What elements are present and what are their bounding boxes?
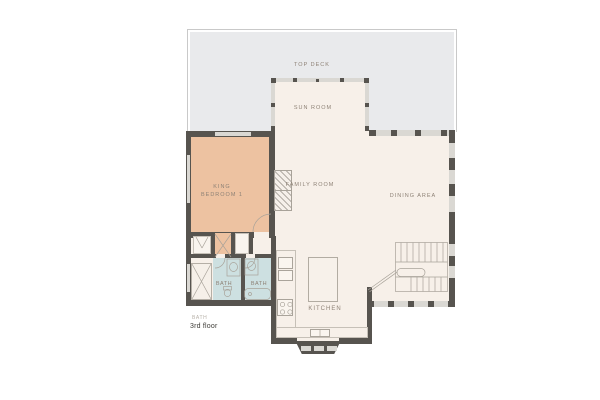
fireplace-lower	[274, 190, 292, 211]
sun-room-post	[364, 78, 369, 83]
label-king-line1: KING	[187, 183, 257, 191]
label-king-line2: BEDROOM 1	[187, 191, 257, 199]
sun-room-post	[271, 78, 276, 83]
bath-south-wall	[186, 300, 276, 306]
label-sun-room: SUN ROOM	[273, 104, 353, 112]
label-bath-1: BATH	[209, 280, 239, 288]
bedroom-north-window	[215, 132, 251, 136]
label-floor-name: 3rd floor	[190, 323, 217, 330]
bay-window-glass	[301, 346, 337, 351]
wall-post	[448, 301, 455, 307]
label-top-deck: TOP DECK	[272, 61, 352, 69]
bay-window-post	[311, 346, 314, 351]
sun-room-north-wall	[271, 78, 369, 82]
west-lower-window	[187, 264, 190, 292]
label-family-room: FAMILY ROOM	[270, 181, 350, 189]
wall-post	[449, 256, 455, 266]
wall-post	[415, 130, 421, 136]
fridge	[278, 257, 293, 269]
label-outside-bath: BATH	[192, 315, 207, 321]
kitchen-south-wall-left	[271, 338, 297, 344]
wall-post	[388, 301, 394, 307]
cabinet	[278, 270, 293, 281]
label-kitchen: KITCHEN	[285, 305, 365, 313]
sun-room-post	[340, 78, 344, 82]
closet-1	[193, 236, 211, 254]
kitchen-sink	[310, 329, 330, 337]
sun-room-post	[293, 78, 297, 82]
label-king-bedroom: KING BEDROOM 1	[187, 183, 257, 199]
label-bath-2: BATH	[244, 280, 274, 288]
wall-post	[449, 158, 455, 170]
closet-2	[235, 233, 249, 254]
label-dining-area: DINING AREA	[373, 192, 453, 200]
bedroom-hall	[215, 233, 231, 254]
wall-post	[391, 130, 397, 136]
sun-room-post	[365, 103, 369, 107]
floorplan-canvas: TOP DECK SUN ROOM FAMILY ROOM DINING ARE…	[0, 0, 600, 400]
kitchen-island	[308, 257, 338, 302]
wall-post	[369, 130, 376, 136]
wall-post	[449, 212, 455, 244]
bay-window-post	[324, 346, 327, 351]
wall-post	[441, 130, 447, 136]
wall-post	[449, 130, 455, 143]
sun-room-post	[316, 79, 319, 82]
wall-post	[408, 301, 414, 307]
wall-post	[428, 301, 434, 307]
